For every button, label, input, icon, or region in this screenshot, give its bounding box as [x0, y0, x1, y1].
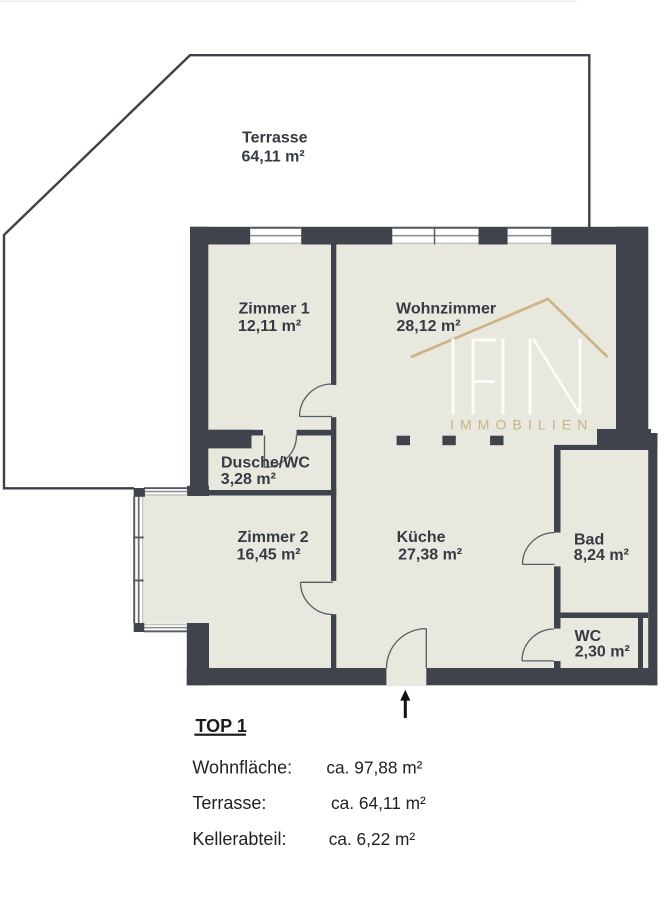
svg-text:Küche: Küche: [397, 529, 446, 546]
svg-text:Dusche/WC: Dusche/WC: [221, 454, 310, 471]
svg-text:16,45 m²: 16,45 m²: [237, 546, 301, 563]
svg-text:Kellerabteil:: Kellerabteil:: [192, 829, 286, 849]
svg-text:28,12 m²: 28,12 m²: [397, 318, 461, 335]
svg-text:WC: WC: [575, 628, 602, 645]
svg-text:64,11 m²: 64,11 m²: [242, 149, 305, 166]
svg-text:3,28 m²: 3,28 m²: [221, 471, 276, 488]
svg-text:27,38 m²: 27,38 m²: [398, 546, 462, 563]
svg-text:Wohnfläche:: Wohnfläche:: [192, 758, 292, 778]
svg-text:8,24 m²: 8,24 m²: [574, 547, 629, 564]
svg-text:12,11 m²: 12,11 m²: [238, 318, 301, 335]
svg-text:TOP 1: TOP 1: [196, 716, 247, 736]
svg-text:Bad: Bad: [574, 531, 604, 548]
svg-text:ca. 6,22 m²: ca. 6,22 m²: [329, 829, 416, 849]
svg-text:Wohnzimmer: Wohnzimmer: [396, 301, 496, 318]
svg-text:Terrasse:: Terrasse:: [192, 793, 266, 813]
svg-text:Zimmer 2: Zimmer 2: [238, 529, 309, 546]
svg-text:Terrasse: Terrasse: [242, 130, 308, 147]
svg-text:2,30 m²: 2,30 m²: [575, 644, 630, 661]
svg-text:IMMOBILIEN: IMMOBILIEN: [450, 417, 593, 433]
svg-text:Zimmer 1: Zimmer 1: [239, 301, 310, 318]
svg-text:ca. 64,11 m²: ca. 64,11 m²: [331, 793, 426, 813]
svg-text:ca. 97,88 m²: ca. 97,88 m²: [326, 758, 422, 778]
